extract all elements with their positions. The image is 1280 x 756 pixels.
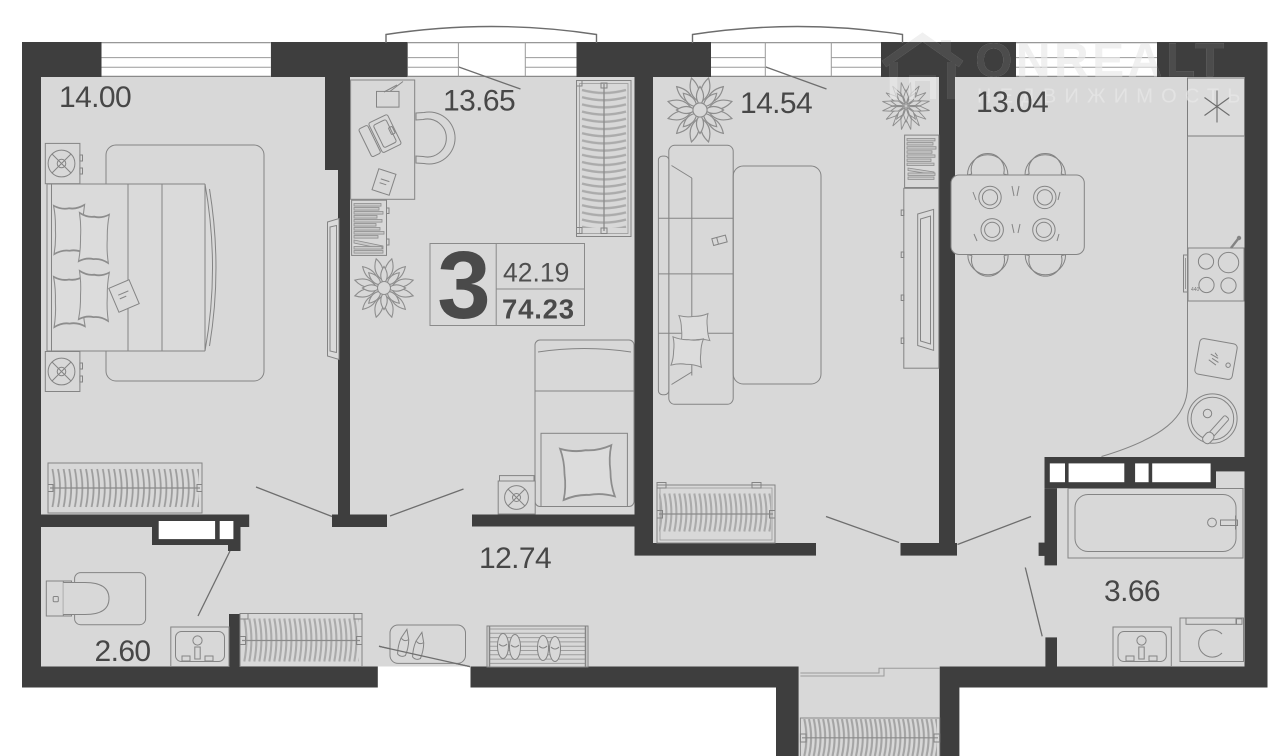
svg-text:74.23: 74.23 bbox=[502, 294, 575, 325]
svg-text:2.60: 2.60 bbox=[95, 635, 151, 668]
svg-text:3: 3 bbox=[437, 232, 490, 339]
svg-text:13.65: 13.65 bbox=[443, 85, 515, 118]
svg-text:12.74: 12.74 bbox=[479, 542, 551, 575]
svg-text:14.00: 14.00 bbox=[59, 81, 131, 114]
svg-text:14.54: 14.54 bbox=[740, 87, 812, 120]
svg-text:3.66: 3.66 bbox=[1104, 575, 1160, 608]
svg-text:440: 440 bbox=[1191, 287, 1200, 293]
svg-text:42.19: 42.19 bbox=[503, 258, 569, 288]
svg-text:13.04: 13.04 bbox=[976, 86, 1048, 119]
